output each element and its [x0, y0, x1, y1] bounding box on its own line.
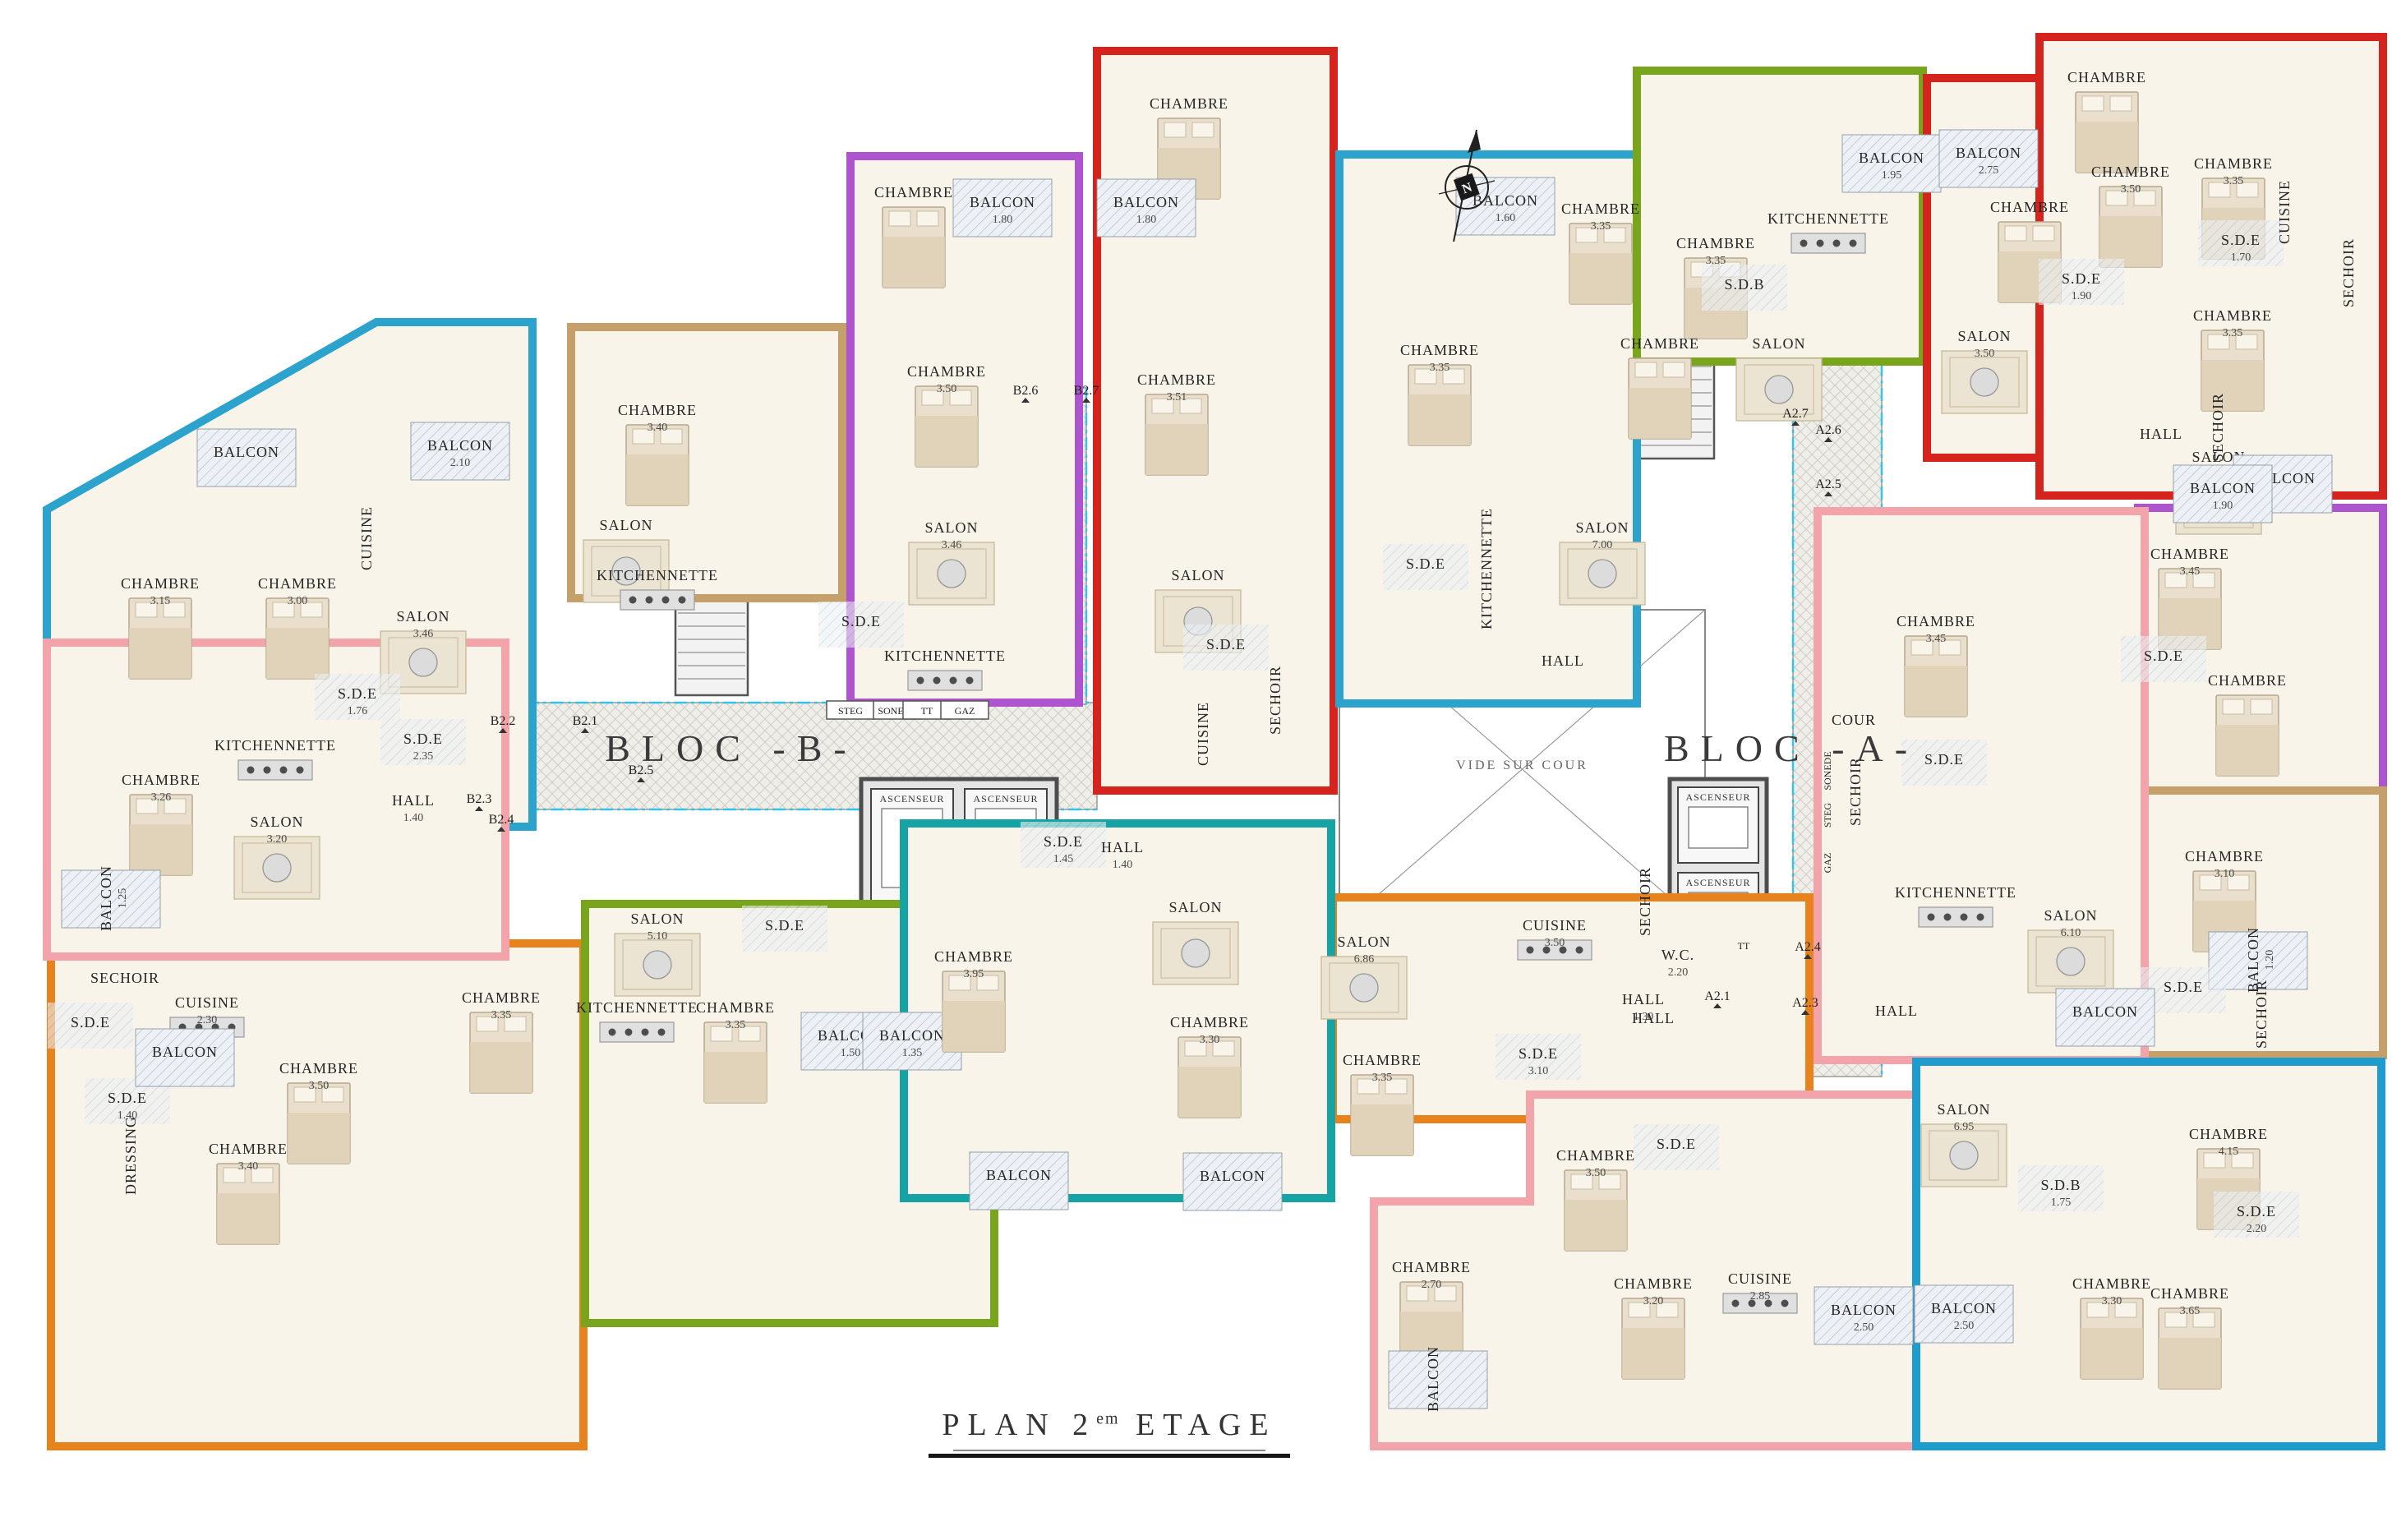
room-dimension: 6.95 [1954, 1121, 1975, 1133]
bed-blanket [130, 824, 192, 875]
room-label: CHAMBRE [1150, 95, 1228, 112]
room-label: BALCON [986, 1167, 1052, 1183]
unit-label: B2.4 [489, 813, 514, 827]
title-underline-thick [929, 1454, 1290, 1458]
bed-pillow [2082, 96, 2104, 111]
room-label: CHAMBRE [874, 184, 953, 201]
room-label: BALCON [98, 865, 114, 931]
room-dimension: 1.40 [403, 812, 424, 824]
bed-blanket [915, 416, 978, 467]
room-label: CHAMBRE [696, 999, 775, 1016]
room-label: CHAMBRE [121, 575, 200, 592]
table [263, 854, 291, 882]
room-label: CHAMBRE [2193, 307, 2272, 324]
utility-label: STEG [1822, 803, 1833, 828]
room-dimension: 3.50 [937, 383, 957, 395]
room-label: S.D.E [403, 731, 443, 747]
room-label: CHAMBRE [258, 575, 337, 592]
room-dimension: 3.20 [267, 833, 288, 846]
room-dimension: 7.00 [1592, 539, 1613, 551]
bloc-b-label: BLOC -B- [575, 726, 887, 770]
room-dimension: 1.90 [2072, 290, 2092, 302]
room-label: S.D.B [2040, 1177, 2081, 1193]
plan-title-text: PLAN 2em ETAGE [942, 1408, 1276, 1442]
room-label: CHAMBRE [2185, 848, 2264, 865]
room-label: BALCON [970, 194, 1035, 210]
room-label: S.D.B [1724, 276, 1764, 293]
room-dimension: 3.45 [2180, 565, 2201, 578]
room-label: BALCON [152, 1044, 218, 1060]
room-dimension: 1.75 [2051, 1196, 2072, 1209]
stove-burner [933, 677, 941, 685]
room-dimension: 3.51 [1167, 391, 1187, 403]
room-dimension: 3.50 [309, 1080, 330, 1092]
elevator-label: ASCENSEUR [879, 793, 944, 805]
unit-label: A2.1 [1704, 989, 1731, 1003]
room-label: BALCON [1200, 1168, 1265, 1184]
room-label: CHAMBRE [1990, 199, 2069, 215]
room-dimension: 3.30 [1200, 1034, 1220, 1046]
stove-burner [1527, 947, 1534, 954]
room-label: CHAMBRE [2189, 1126, 2268, 1142]
room-label: COUR [1832, 712, 1876, 728]
room-dimension: 2.20 [2247, 1223, 2267, 1235]
room-label: S.D.E [338, 685, 377, 702]
room-label: BALCON [214, 444, 279, 460]
room-label: S.D.E [2164, 979, 2203, 995]
room-dimension: 2.50 [1854, 1321, 1874, 1334]
stove-burner [297, 767, 304, 774]
room-dimension: 3.35 [2223, 327, 2243, 339]
room-dimension: 3.35 [491, 1009, 512, 1021]
stove-burner [1732, 1300, 1740, 1307]
unit-label: A2.7 [1782, 407, 1809, 421]
room-dimension: 3.35 [1591, 220, 1611, 233]
room-dimension: 2.30 [197, 1014, 218, 1026]
room-label: BALCON [2072, 1003, 2138, 1020]
room-dimension: 1.70 [2231, 251, 2251, 264]
plan-title: PLAN 2em ETAGE [929, 1407, 1290, 1458]
plan-title-main: PLAN 2 [942, 1408, 1096, 1442]
room-label: BALCON [1931, 1300, 1997, 1316]
room-label: CHAMBRE [1561, 201, 1640, 217]
room-label: CUISINE [358, 506, 375, 570]
bed-pillow [889, 211, 910, 226]
bed-pillow [2033, 226, 2054, 241]
room-label: CHAMBRE [2072, 1275, 2151, 1292]
room-dimension: 1.45 [1053, 853, 1074, 865]
room-label: CHAMBRE [122, 772, 200, 788]
stove-burner [1833, 240, 1841, 247]
room-label: CHAMBRE [934, 948, 1013, 965]
room-label: SECHOIR [2340, 238, 2357, 307]
floor-plan-svg: VIDE SUR COURASCENSEURASCENSEURASCENSEUR… [0, 0, 2392, 1540]
room-label: BALCON [1425, 1346, 1441, 1412]
stove-burner [1817, 240, 1824, 247]
room-dimension: 1.95 [1882, 169, 1902, 182]
room-label: BALCON [1113, 194, 1179, 210]
room-label: CHAMBRE [1343, 1052, 1422, 1068]
room-dimension: 2.35 [413, 750, 434, 763]
room-dimension: 6.10 [2061, 927, 2081, 939]
room-label: SALON [630, 911, 684, 927]
room-label: SALON [1937, 1101, 1990, 1118]
bed-blanket [704, 1052, 767, 1103]
unit-label: A2.6 [1815, 423, 1841, 437]
room-label: CHAMBRE [2194, 155, 2273, 172]
stove-burner [629, 597, 637, 604]
room-dimension: 3.45 [1926, 633, 1947, 645]
elevator-label: ASCENSEUR [1685, 877, 1750, 888]
room-label: CHAMBRE [1614, 1275, 1693, 1292]
bed-pillow [917, 211, 938, 226]
apartment-outline [1916, 1062, 2381, 1446]
room-label: S.D.E [841, 613, 881, 629]
stove-burner [1800, 240, 1808, 247]
room-dimension: 3.00 [288, 595, 308, 607]
bed-pillow [1164, 122, 1186, 137]
room-dimension: 3.35 [2224, 175, 2244, 187]
room-label: CHAMBRE [2067, 69, 2146, 85]
room-dimension: 3.50 [1545, 937, 1565, 949]
room-label: SECHOIR [2210, 393, 2226, 462]
unit-label: A2.5 [1815, 477, 1841, 491]
room-label: SALON [1575, 519, 1629, 536]
room-dimension: 3.50 [2121, 183, 2141, 196]
room-label: SALON [1957, 328, 2011, 344]
room-dimension: 3.10 [1528, 1065, 1549, 1077]
room-label: CHAMBRE [279, 1060, 358, 1077]
title-underline-thin [953, 1450, 1265, 1451]
stove-burner [966, 677, 974, 685]
bed-blanket [2216, 725, 2279, 776]
table [1765, 376, 1793, 403]
room-dimension: 3.46 [942, 539, 962, 551]
bed-blanket [1565, 1200, 1627, 1251]
compass-arrow-tip [1468, 130, 1481, 153]
utility-label: GAZ [955, 705, 975, 717]
room-label: S.D.E [71, 1014, 110, 1031]
room-dimension: 1.50 [841, 1047, 861, 1059]
room-label: SALON [1752, 335, 1805, 352]
stove-burner [1944, 914, 1952, 921]
unit-label: B2.6 [1013, 384, 1039, 398]
stove-burner [679, 597, 686, 604]
utility-label: TT [1738, 940, 1750, 952]
stove-burner [609, 1029, 616, 1036]
room-dimension: 1.90 [2213, 500, 2233, 512]
table [1182, 939, 1210, 967]
room-label: W.C. [1661, 947, 1694, 963]
stove-burner [1977, 914, 1984, 921]
room-dimension: 5.10 [648, 930, 668, 943]
floor-plan: VIDE SUR COURASCENSEURASCENSEURASCENSEUR… [0, 0, 2392, 1540]
table [1970, 368, 1998, 396]
stove-burner [264, 767, 271, 774]
stove-burner [1781, 1300, 1789, 1307]
room-label: CHAMBRE [2091, 164, 2170, 180]
room-dimension: 2.10 [450, 457, 471, 469]
room-label: HALL [2140, 426, 2182, 442]
table [643, 951, 671, 979]
bed-blanket [943, 1001, 1005, 1052]
table [1950, 1141, 1978, 1169]
room-label: CUISINE [1523, 917, 1587, 934]
bed-blanket [2081, 1328, 2143, 1379]
bed-blanket [470, 1042, 532, 1093]
room-label: DRESSING [122, 1116, 139, 1195]
bed-blanket [1629, 388, 1691, 439]
room-dimension: 3.15 [150, 595, 171, 607]
elevator-label: ASCENSEUR [973, 793, 1038, 805]
bed-blanket [1178, 1067, 1241, 1118]
stove-burner [950, 677, 957, 685]
stove-burner [1850, 240, 1857, 247]
room-label: CHAMBRE [2150, 1285, 2229, 1302]
room-label: S.D.E [2062, 270, 2101, 287]
stove-burner [625, 1029, 633, 1036]
room-label: S.D.E [2144, 648, 2183, 664]
room-label: HALL [1542, 652, 1584, 669]
room-label: SALON [1337, 934, 1390, 950]
room-dimension: 1.76 [348, 705, 368, 717]
table [409, 648, 437, 676]
room-label: KITCHENNETTE [576, 999, 698, 1016]
elevator-label: ASCENSEUR [1685, 791, 1750, 803]
table [1588, 560, 1616, 588]
room-label: SALON [250, 814, 303, 830]
room-dimension: 3.65 [2180, 1305, 2201, 1317]
table [2057, 948, 2085, 975]
room-dimension: 3.26 [151, 791, 172, 804]
room-label: CHAMBRE [618, 402, 697, 418]
utility-label: TT [921, 705, 933, 717]
room-dimension: 3.50 [1586, 1167, 1606, 1179]
bed-blanket [626, 454, 689, 505]
room-dimension: 3.50 [1975, 348, 1995, 360]
stove-burner [917, 677, 924, 685]
bed-pillow [1192, 122, 1214, 137]
room-label: S.D.E [1044, 833, 1083, 850]
room-label: BALCON [1473, 192, 1538, 209]
room-label: SALON [396, 608, 449, 625]
room-label: S.D.E [765, 917, 804, 934]
room-dimension: 2.70 [1422, 1279, 1442, 1291]
unit-label: B2.3 [467, 792, 492, 806]
room-label: SECHOIR [1267, 666, 1284, 735]
room-dimension: 2.50 [1954, 1320, 1975, 1332]
stove-burner [247, 767, 255, 774]
room-label: SECHOIR [1637, 867, 1653, 936]
room-label: CUISINE [1728, 1270, 1792, 1287]
room-dimension: 6.86 [1354, 953, 1375, 966]
room-dimension: 3.35 [726, 1019, 746, 1031]
room-label: KITCHENNETTE [214, 737, 336, 754]
room-label: CUISINE [175, 994, 239, 1011]
plan-title-sup: em [1096, 1409, 1119, 1427]
room-label: HALL [1622, 991, 1665, 1007]
room-label: HALL [1632, 1010, 1675, 1026]
room-label: BALCON [1956, 145, 2021, 161]
room-label: S.D.E [1406, 556, 1445, 572]
room-label: BALCON [427, 437, 493, 454]
room-label: BALCON [1831, 1302, 1897, 1318]
room-label: CHAMBRE [1170, 1014, 1249, 1031]
bed-blanket [129, 628, 191, 679]
room-label: CHAMBRE [1556, 1147, 1635, 1164]
bed-blanket [1569, 253, 1632, 304]
room-label: KITCHENNETTE [1478, 508, 1495, 629]
apartment-a7 [1916, 1062, 2381, 1446]
room-label: HALL [1875, 1003, 1918, 1019]
bed-blanket [217, 1193, 279, 1244]
room-label: BALCON [879, 1027, 945, 1044]
room-label: KITCHENNETTE [1767, 210, 1889, 227]
room-label: SALON [2044, 907, 2097, 924]
room-label: SALON [1168, 899, 1222, 915]
room-label: SALON [924, 519, 978, 536]
room-label: S.D.E [1206, 636, 1246, 652]
room-dimension: 3.10 [2215, 868, 2235, 880]
bed-blanket [2159, 1338, 2221, 1389]
bed-blanket [1622, 1328, 1685, 1379]
room-dimension: 3.20 [1643, 1295, 1664, 1307]
room-dimension: 1.20 [2264, 950, 2276, 971]
room-dimension: 3.40 [238, 1160, 259, 1173]
room-dimension: 3.95 [964, 968, 984, 980]
room-label: SECHOIR [2253, 980, 2270, 1049]
bed-pillow [2110, 96, 2132, 111]
room-label: SALON [1171, 567, 1224, 583]
utility-label: STEG [838, 705, 863, 717]
room-dimension: 1.40 [1113, 859, 1133, 871]
room-label: S.D.E [108, 1090, 147, 1106]
room-label: CHAMBRE [907, 363, 986, 380]
bed-blanket [1408, 394, 1471, 445]
room-dimension: 1.80 [993, 214, 1013, 226]
room-label: CHAMBRE [1400, 342, 1479, 358]
room-label: CHAMBRE [2150, 546, 2229, 562]
stove-burner [1928, 914, 1935, 921]
stove-burner [1576, 947, 1583, 954]
unit-label: A2.4 [1795, 940, 1821, 954]
bed-blanket [288, 1113, 350, 1164]
plan-title-rest: ETAGE [1120, 1408, 1277, 1442]
room-label: KITCHENNETTE [884, 648, 1006, 664]
unit-label: B2.7 [1074, 384, 1099, 398]
stove-burner [1961, 914, 1968, 921]
stove-burner [646, 597, 653, 604]
room-label: S.D.E [2237, 1203, 2276, 1220]
room-label: SECHOIR [90, 970, 159, 986]
table [938, 560, 966, 588]
room-label: S.D.E [2221, 232, 2261, 248]
room-label: CHAMBRE [1676, 235, 1755, 251]
bed-pillow [1635, 362, 1657, 377]
room-dimension: 1.80 [1136, 214, 1157, 226]
room-label: CHAMBRE [1392, 1259, 1471, 1275]
room-dimension: 2.75 [1979, 164, 1999, 177]
bed-pillow [2251, 699, 2272, 714]
stove-burner [280, 767, 288, 774]
courtyard-label: VIDE SUR COUR [1456, 758, 1588, 772]
unit-label: A2.3 [1792, 996, 1818, 1010]
bed-blanket [266, 628, 329, 679]
stove-burner [642, 1029, 649, 1036]
room-label: HALL [1101, 839, 1144, 855]
utility-label: GAZ [1822, 853, 1833, 874]
room-label: CHAMBRE [2208, 672, 2287, 689]
room-dimension: 3.35 [1372, 1072, 1393, 1084]
room-label: SALON [599, 517, 652, 533]
bed-blanket [1145, 424, 1208, 475]
room-dimension: 1.60 [1496, 212, 1516, 224]
unit-label: B2.2 [491, 714, 516, 728]
bed-pillow [2005, 226, 2026, 241]
room-dimension: 4.15 [2219, 1146, 2239, 1158]
bed-pillow [1663, 362, 1685, 377]
room-label: KITCHENNETTE [1895, 884, 2016, 901]
room-label: CUISINE [1195, 702, 1211, 766]
stove-burner [658, 1029, 666, 1036]
room-dimension: 3.46 [413, 628, 434, 640]
room-label: CHAMBRE [1137, 371, 1216, 388]
room-label: HALL [392, 792, 435, 809]
room-label: KITCHENNETTE [597, 567, 718, 583]
room-dimension: 1.35 [902, 1047, 923, 1059]
room-label: S.D.E [1519, 1045, 1558, 1062]
bed-blanket [1905, 666, 1967, 717]
table [1350, 974, 1378, 1002]
bed-pillow [2223, 699, 2244, 714]
room-dimension: 2.20 [1668, 966, 1689, 979]
bloc-a-label: BLOC -A- [1635, 726, 1947, 770]
room-label: CHAMBRE [1620, 335, 1699, 352]
elevator-cab [1689, 807, 1748, 848]
room-label: S.D.E [1657, 1136, 1696, 1152]
room-label: BALCON [2190, 480, 2256, 496]
bed-blanket [1351, 1104, 1413, 1155]
room-label: CUISINE [2276, 180, 2293, 244]
bed-blanket [883, 237, 945, 288]
room-dimension: 1.25 [117, 888, 129, 909]
room-label: BALCON [1859, 150, 1924, 166]
stove-burner [662, 597, 670, 604]
room-label: CHAMBRE [462, 989, 541, 1006]
room-dimension: 3.35 [1430, 362, 1450, 374]
room-dimension: 3.30 [2102, 1295, 2122, 1307]
room-dimension: 2.85 [1750, 1290, 1771, 1303]
room-label: CHAMBRE [1897, 613, 1975, 629]
room-dimension: 3.40 [648, 422, 668, 434]
room-label: CHAMBRE [209, 1141, 288, 1157]
